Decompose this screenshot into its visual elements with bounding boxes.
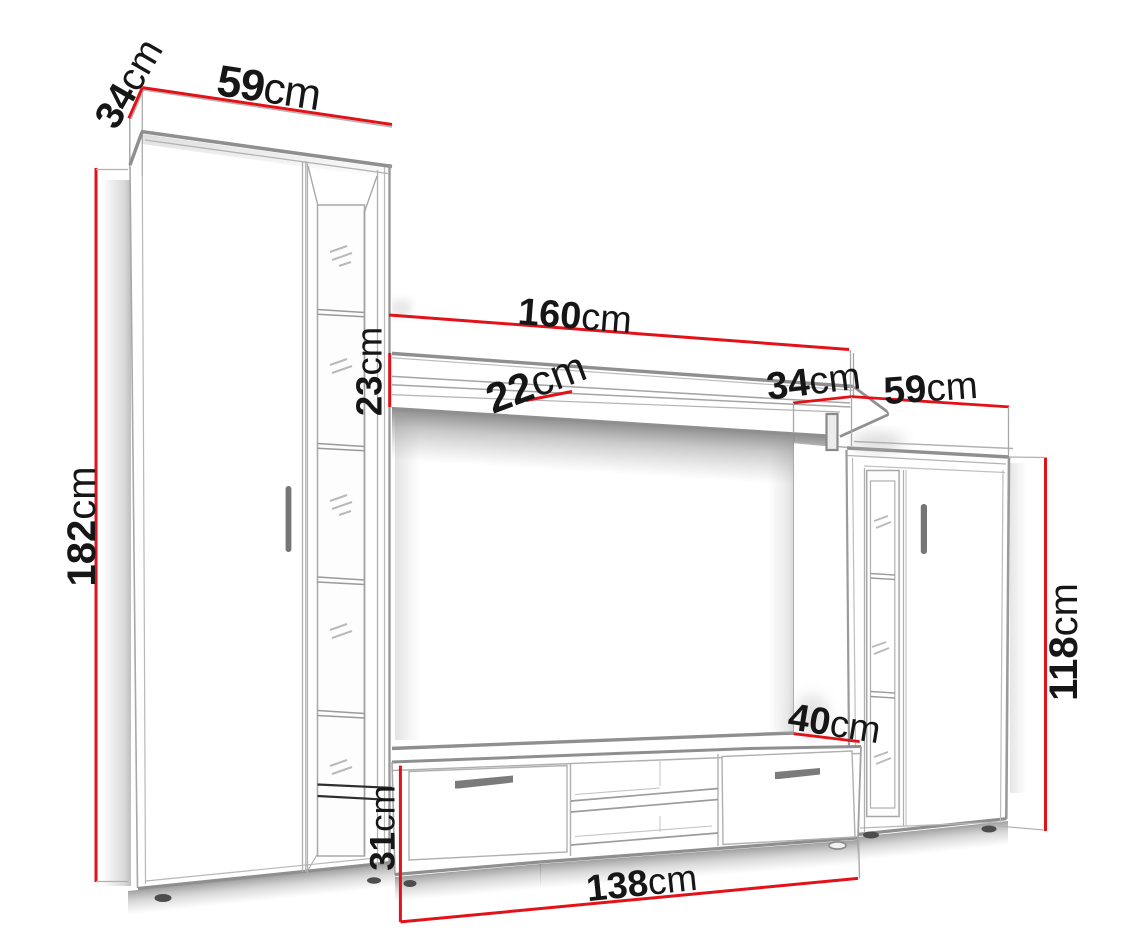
svg-text:182cm: 182cm	[60, 466, 104, 586]
svg-text:23cm: 23cm	[349, 327, 390, 416]
svg-text:59cm: 59cm	[882, 364, 979, 413]
svg-text:160cm: 160cm	[516, 291, 633, 342]
svg-text:118cm: 118cm	[1042, 583, 1086, 701]
svg-text:31cm: 31cm	[364, 785, 403, 871]
